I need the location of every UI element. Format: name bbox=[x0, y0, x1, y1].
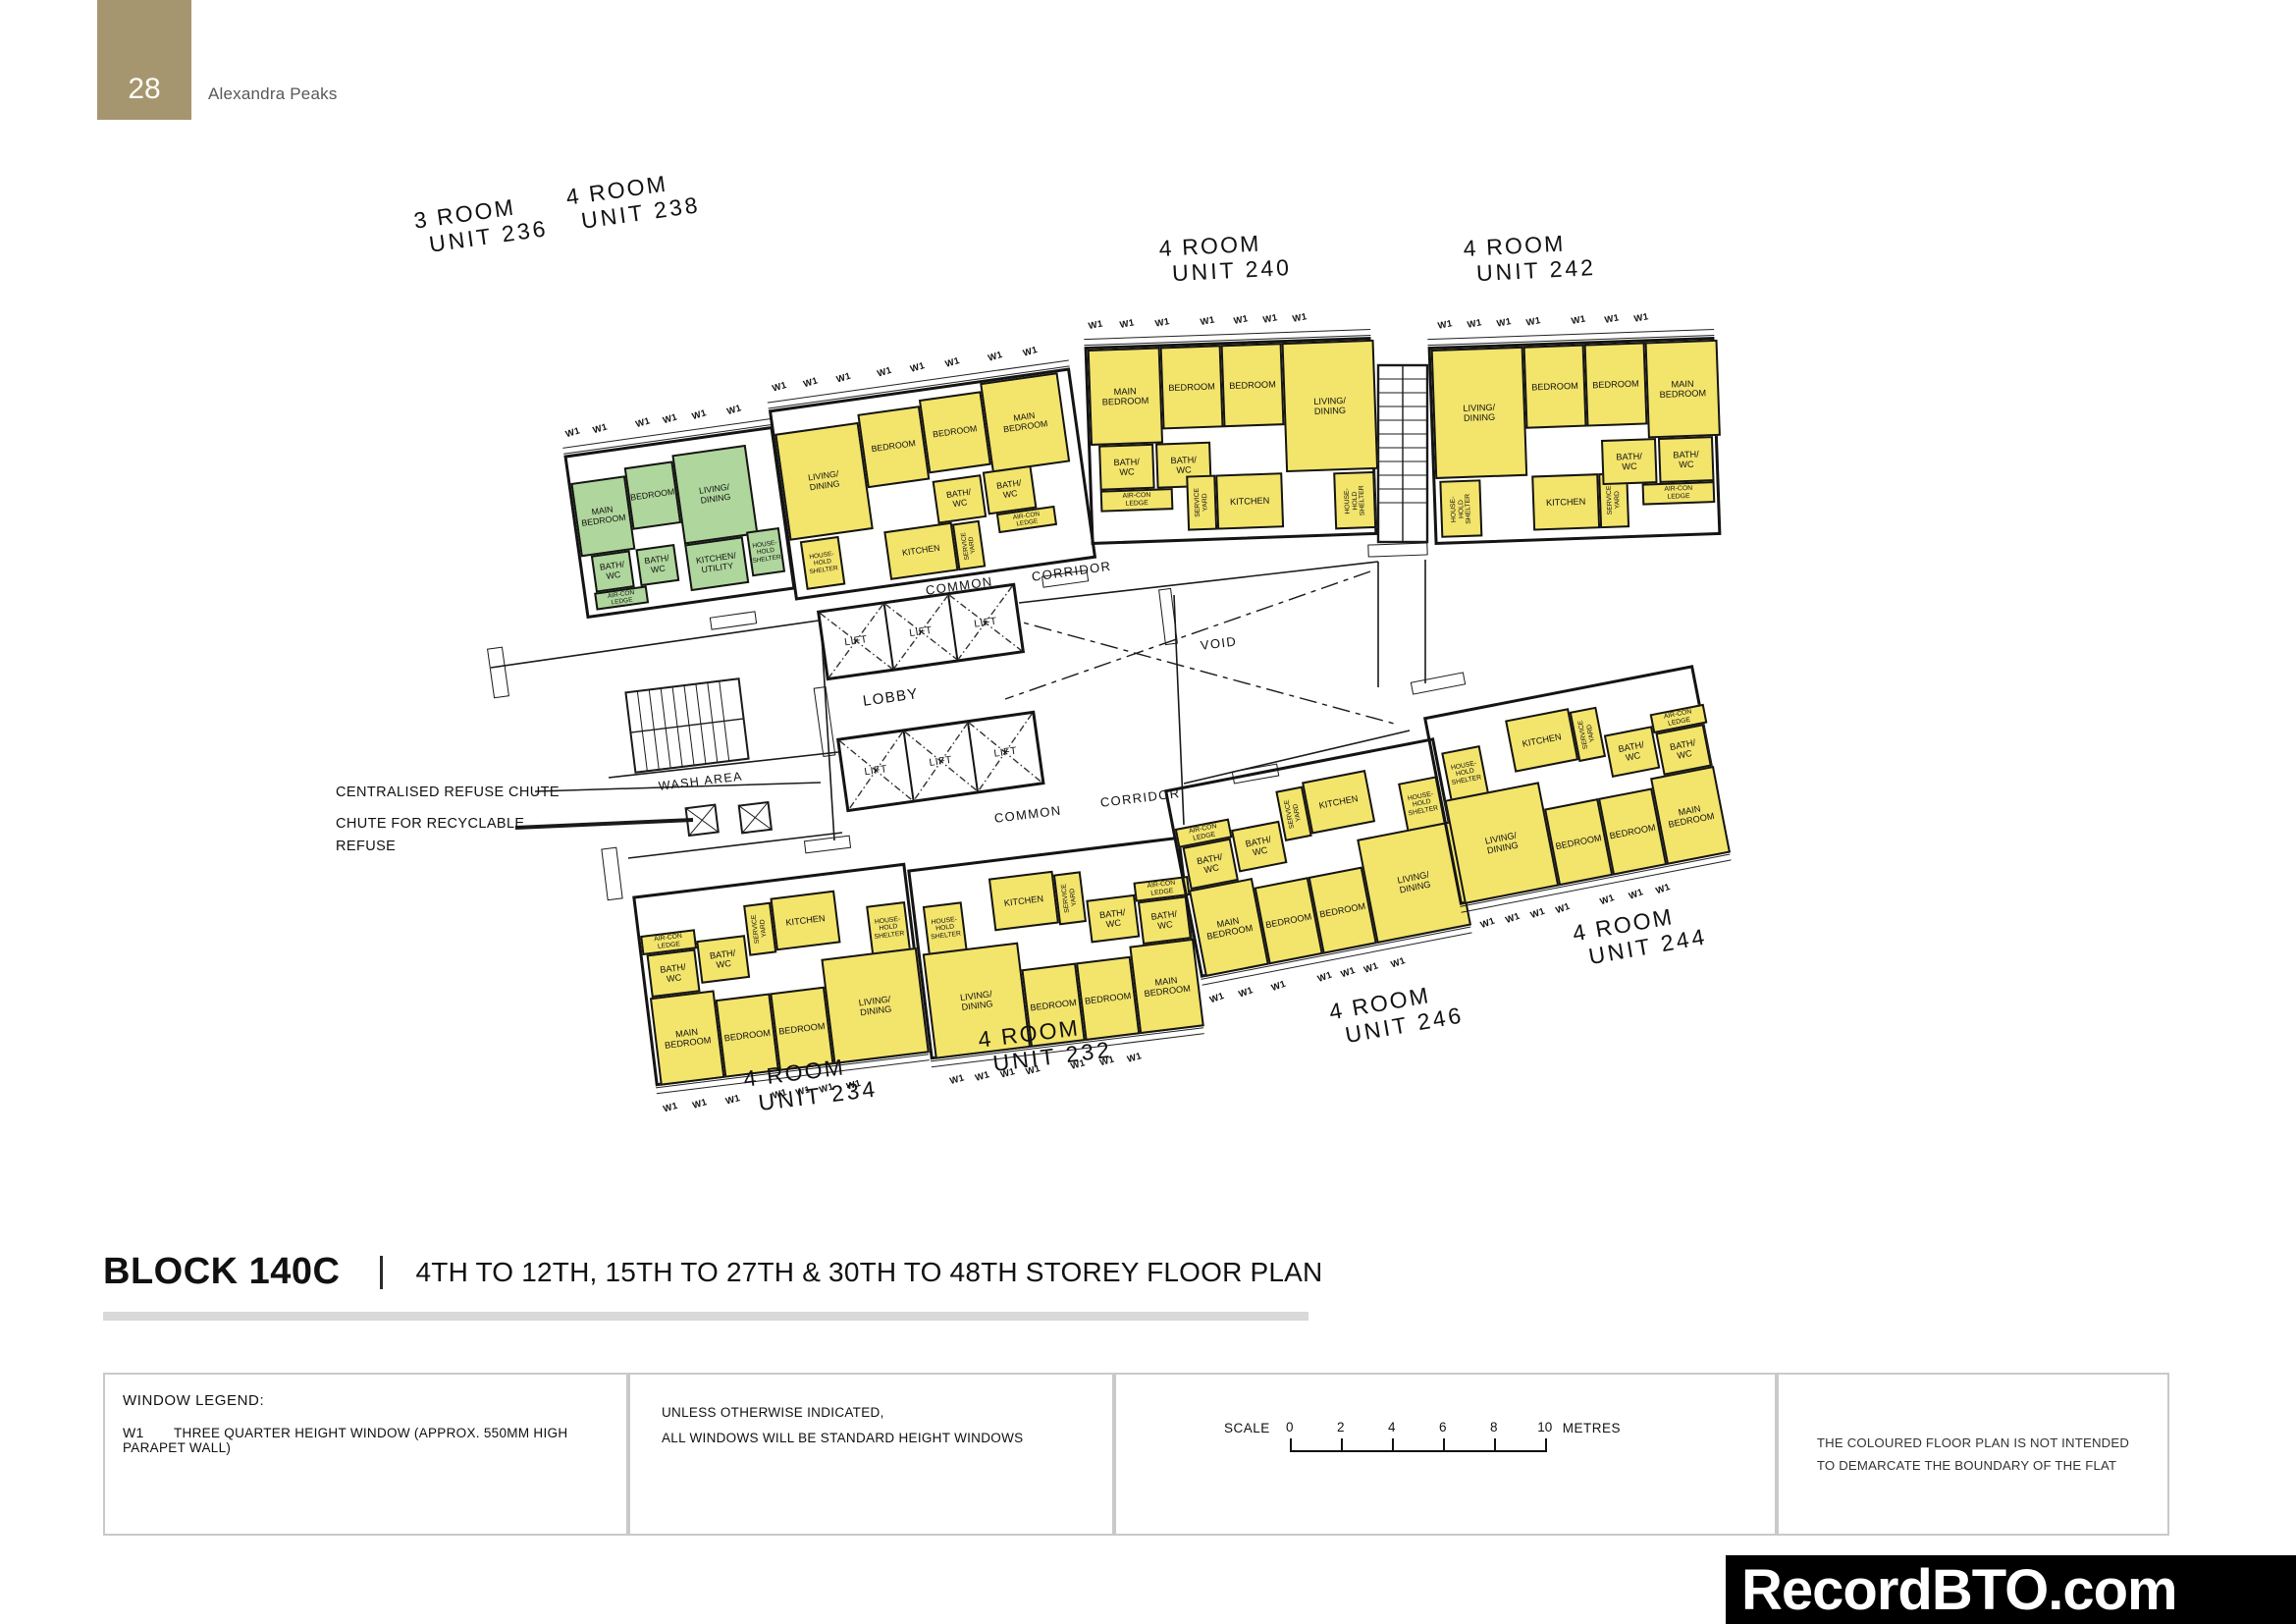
lift-cell: LIFT bbox=[820, 604, 893, 677]
room-bath-wc: BATH/ WC bbox=[1086, 894, 1140, 944]
scale-ruler-tick bbox=[1341, 1438, 1343, 1452]
room-label: HOUSE- HOLD SHELTER bbox=[1405, 790, 1439, 818]
unit-label-240: 4 ROOMUNIT 240 bbox=[1158, 229, 1293, 288]
room-label: BATH/ WC bbox=[1618, 739, 1647, 764]
room-main-bedroom: MAIN BEDROOM bbox=[1645, 340, 1721, 439]
room-label: MAIN BEDROOM bbox=[1143, 973, 1192, 999]
scale-label: SCALE bbox=[1224, 1420, 1270, 1435]
room-label: BEDROOM bbox=[1229, 379, 1276, 391]
room-label: BATH/ WC bbox=[1170, 455, 1197, 476]
room-label: LIVING/ DINING bbox=[1313, 396, 1346, 417]
room-label: BEDROOM bbox=[1555, 833, 1603, 851]
room-bedroom: BEDROOM bbox=[1221, 343, 1285, 427]
scale-ruler-tick bbox=[1443, 1438, 1445, 1452]
room-label: MAIN BEDROOM bbox=[1204, 913, 1255, 942]
floor-plan-page: 28 Alexandra Peaks bbox=[0, 0, 2296, 1624]
window-tag-w1: W1 bbox=[1262, 312, 1279, 326]
unit-label-line: UNIT 242 bbox=[1475, 254, 1596, 287]
window-tag-w1: W1 bbox=[634, 415, 651, 430]
window-tag-w1: W1 bbox=[1316, 970, 1334, 985]
room-house-hold-shelter: HOUSE- HOLD SHELTER bbox=[1333, 471, 1376, 529]
window-tag-w1: W1 bbox=[1628, 887, 1645, 901]
window-tag-w1: W1 bbox=[1340, 965, 1358, 980]
window-tag-w1: W1 bbox=[1633, 311, 1650, 325]
disclaimer-box: THE COLOURED FLOOR PLAN IS NOT INTENDED … bbox=[1777, 1373, 2169, 1536]
window-tag-w1: W1 bbox=[1479, 916, 1497, 931]
window-tag-w1: W1 bbox=[1270, 979, 1288, 994]
window-tag-w1: W1 bbox=[1233, 313, 1250, 327]
room-bath-wc: BATH/ WC bbox=[635, 544, 679, 586]
room-label: LIVING/ DINING bbox=[858, 994, 892, 1017]
window-tag-w1: W1 bbox=[1571, 313, 1587, 327]
unit-label-236: 3 ROOMUNIT 236 bbox=[412, 189, 550, 259]
scale-tick: 2 bbox=[1337, 1420, 1345, 1435]
room-bedroom: BEDROOM bbox=[857, 406, 930, 488]
room-bath-wc: BATH/ WC bbox=[1601, 438, 1658, 485]
room-living-dining: LIVING/ DINING bbox=[774, 422, 873, 541]
scale-ruler-tick bbox=[1290, 1438, 1292, 1452]
legend-strip: WINDOW LEGEND: W1THREE QUARTER HEIGHT WI… bbox=[103, 1373, 2169, 1536]
room-label: AIR-CON LEDGE bbox=[1147, 880, 1176, 898]
room-label: BEDROOM bbox=[630, 488, 675, 504]
room-service-yard: SERVICE YARD bbox=[952, 520, 986, 570]
unit-240: W1W1W1W1W1W1W1MAIN BEDROOMBEDROOMBEDROOM… bbox=[1085, 337, 1378, 545]
room-label: KITCHEN bbox=[1318, 793, 1360, 811]
window-tag-w1: W1 bbox=[1504, 911, 1522, 926]
room-bedroom: BEDROOM bbox=[624, 460, 681, 529]
window-legend-box: WINDOW LEGEND: W1THREE QUARTER HEIGHT WI… bbox=[103, 1373, 628, 1536]
scale-tick: 6 bbox=[1439, 1420, 1447, 1435]
room-living-dining: LIVING/ DINING bbox=[1431, 347, 1528, 479]
room-main-bedroom: MAIN BEDROOM bbox=[650, 990, 724, 1085]
room-label: BATH/ WC bbox=[1113, 457, 1140, 478]
room-bedroom: BEDROOM bbox=[1523, 345, 1587, 429]
room-label: BEDROOM bbox=[1531, 381, 1578, 393]
room-label: AIR-CON LEDGE bbox=[1012, 511, 1041, 528]
room-label: KITCHEN bbox=[902, 544, 941, 559]
lift-cell: LIFT bbox=[904, 723, 979, 800]
room-label: MAIN BEDROOM bbox=[1101, 386, 1148, 407]
room-label: LIVING/ DINING bbox=[808, 469, 841, 493]
room-bath-wc: BATH/ WC bbox=[696, 935, 750, 984]
room-bath-wc: BATH/ WC bbox=[1138, 895, 1192, 945]
room-label: BEDROOM bbox=[723, 1028, 771, 1044]
window-tag-w1: W1 bbox=[725, 403, 742, 417]
room-living-dining: LIVING/ DINING bbox=[1444, 782, 1559, 904]
room-kitchen: KITCHEN bbox=[770, 891, 840, 951]
scale-ruler-tick bbox=[1392, 1438, 1394, 1452]
unit-label-244: 4 ROOMUNIT 244 bbox=[1571, 898, 1709, 972]
room-label: SERVICE YARD bbox=[1061, 883, 1080, 913]
watermark-text: RecordBTO.com bbox=[1741, 1557, 2177, 1623]
window-tag-w1: W1 bbox=[909, 360, 926, 375]
scale-bar: SCALE 0 2 4 6 8 10 METRES bbox=[1224, 1420, 1621, 1463]
room-label: BATH/ WC bbox=[1098, 907, 1127, 931]
scale-tick: 8 bbox=[1490, 1420, 1498, 1435]
room-bedroom: BEDROOM bbox=[919, 391, 991, 473]
room-house-hold-shelter: HOUSE- HOLD SHELTER bbox=[746, 527, 785, 576]
window-tag-w1: W1 bbox=[1604, 312, 1621, 326]
room-label: BATH/ WC bbox=[644, 554, 671, 576]
scale-ruler-line bbox=[1290, 1450, 1547, 1452]
room-bath-wc: BATH/ WC bbox=[933, 474, 988, 524]
scale-ruler-tick bbox=[1545, 1438, 1547, 1452]
windows-note-line: ALL WINDOWS WILL BE STANDARD HEIGHT WIND… bbox=[662, 1431, 1023, 1445]
room-label: BATH/ WC bbox=[1673, 449, 1699, 470]
disclaimer-text: THE COLOURED FLOOR PLAN IS NOT INTENDED … bbox=[1817, 1432, 2129, 1477]
room-label: LIVING/ DINING bbox=[699, 483, 732, 507]
title-divider bbox=[380, 1256, 383, 1289]
disclaimer-line: TO DEMARCATE THE BOUNDARY OF THE FLAT bbox=[1817, 1458, 2116, 1473]
room-label: HOUSE- HOLD SHELTER bbox=[1449, 493, 1472, 524]
room-label: HOUSE- HOLD SHELTER bbox=[807, 550, 838, 575]
room-living-dining: LIVING/ DINING bbox=[821, 947, 929, 1064]
room-label: KITCHEN bbox=[785, 913, 826, 928]
window-legend-row: W1THREE QUARTER HEIGHT WINDOW (APPROX. 5… bbox=[123, 1425, 626, 1455]
room-label: BATH/ WC bbox=[709, 947, 737, 971]
room-bath-wc: BATH/ WC bbox=[1604, 726, 1660, 778]
window-tag-w1: W1 bbox=[1654, 882, 1672, 896]
window-tag-w1: W1 bbox=[1022, 345, 1039, 359]
window-legend-title: WINDOW LEGEND: bbox=[123, 1392, 626, 1409]
room-label: BEDROOM bbox=[1264, 911, 1312, 930]
lift-cell: LIFT bbox=[839, 731, 914, 809]
unit-246: W1W1W1W1W1W1W1AIR-CON LEDGEBATH/ WCBATH/… bbox=[1164, 737, 1470, 978]
room-label: LIVING/ DINING bbox=[959, 989, 993, 1012]
room-label: KITCHEN/ UTILITY bbox=[696, 552, 738, 576]
room-living-dining: LIVING/ DINING bbox=[1282, 340, 1379, 472]
room-label: LIVING/ DINING bbox=[1397, 869, 1432, 894]
room-kitchen: KITCHEN bbox=[1531, 473, 1600, 530]
scale-tick: 10 bbox=[1537, 1420, 1552, 1435]
window-tag-w1: W1 bbox=[1529, 906, 1547, 921]
window-description: THREE QUARTER HEIGHT WINDOW (APPROX. 550… bbox=[123, 1426, 567, 1455]
room-label: BATH/ WC bbox=[1245, 834, 1274, 858]
recycle-chute-callout-line: REFUSE bbox=[336, 839, 396, 854]
storey-subtitle: 4TH TO 12TH, 15TH TO 27TH & 30TH TO 48TH… bbox=[416, 1257, 1323, 1288]
room-label: SERVICE YARD bbox=[1194, 488, 1209, 517]
recycle-chute-callout: CHUTE FOR RECYCLABLE REFUSE bbox=[336, 813, 525, 858]
room-label: BATH/ WC bbox=[1669, 737, 1698, 762]
scale-tick: 0 bbox=[1286, 1420, 1294, 1435]
scale-tick: 4 bbox=[1388, 1420, 1396, 1435]
room-bedroom: BEDROOM bbox=[1584, 342, 1648, 426]
unit-label-242: 4 ROOMUNIT 242 bbox=[1463, 229, 1597, 288]
window-tag-w1: W1 bbox=[1554, 901, 1572, 916]
window-tag-w1: W1 bbox=[1467, 317, 1483, 331]
unit-242: W1W1W1W1W1W1W1LIVING/ DININGBEDROOMBEDRO… bbox=[1428, 337, 1722, 545]
window-tag-w1: W1 bbox=[662, 411, 678, 426]
window-tag-w1: W1 bbox=[564, 425, 581, 440]
window-tag-w1: W1 bbox=[1390, 955, 1408, 970]
room-label: SERVICE YARD bbox=[1606, 486, 1622, 515]
room-label: HOUSE- HOLD SHELTER bbox=[929, 915, 961, 941]
room-service-yard: SERVICE YARD bbox=[1053, 871, 1087, 925]
window-tag-w1: W1 bbox=[592, 421, 609, 436]
room-main-bedroom: MAIN BEDROOM bbox=[1129, 939, 1203, 1034]
window-tag-w1: W1 bbox=[1599, 893, 1617, 907]
scale-unit: METRES bbox=[1563, 1420, 1621, 1435]
room-main-bedroom: MAIN BEDROOM bbox=[570, 475, 635, 557]
room-label: SERVICE YARD bbox=[1577, 719, 1598, 750]
unit-label-238: 4 ROOMUNIT 238 bbox=[564, 166, 702, 236]
unit-234: W1W1W1W1W1W1W1AIR-CON LEDGEBATH/ WCBATH/… bbox=[632, 863, 929, 1087]
window-tag-w1: W1 bbox=[835, 371, 852, 386]
room-label: KITCHEN bbox=[1230, 496, 1270, 508]
room-main-bedroom: MAIN BEDROOM bbox=[980, 372, 1070, 472]
room-bath-wc: BATH/ WC bbox=[1231, 821, 1287, 873]
room-label: BEDROOM bbox=[1168, 381, 1215, 393]
windows-note-box: UNLESS OTHERWISE INDICATED, ALL WINDOWS … bbox=[628, 1373, 1114, 1536]
room-label: MAIN BEDROOM bbox=[1666, 801, 1716, 830]
room-label: SERVICE YARD bbox=[1284, 798, 1305, 830]
room-label: BATH/ WC bbox=[1150, 908, 1179, 932]
room-label: KITCHEN bbox=[1546, 496, 1586, 508]
window-tag-w1: W1 bbox=[1208, 991, 1226, 1005]
lift-cell: LIFT bbox=[884, 595, 958, 669]
window-tag-w1: W1 bbox=[1088, 318, 1104, 332]
room-label: MAIN BEDROOM bbox=[663, 1025, 712, 1051]
room-kitchen: KITCHEN bbox=[1505, 708, 1578, 773]
room-label: BATH/ WC bbox=[996, 479, 1024, 502]
window-tag-w1: W1 bbox=[1496, 316, 1513, 330]
room-label: BATH/ WC bbox=[660, 961, 688, 985]
room-label: MAIN BEDROOM bbox=[1001, 409, 1048, 435]
room-label: LIVING/ DINING bbox=[1463, 403, 1495, 424]
lift-cell: LIFT bbox=[969, 714, 1041, 790]
room-house-hold-shelter: HOUSE- HOLD SHELTER bbox=[866, 901, 911, 955]
window-tag-w1: W1 bbox=[802, 375, 819, 390]
window-tag-w1: W1 bbox=[691, 407, 708, 422]
room-main-bedroom: MAIN BEDROOM bbox=[1088, 347, 1163, 446]
title-underline-bar bbox=[103, 1312, 1308, 1321]
room-label: KITCHEN bbox=[1003, 893, 1043, 908]
room-label: BEDROOM bbox=[871, 439, 916, 455]
unit-238: W1W1W1W1W1W1W1W1LIVING/ DININGBEDROOMBED… bbox=[769, 367, 1096, 600]
room-label: LIVING/ DINING bbox=[1484, 830, 1520, 855]
window-tag-w1: W1 bbox=[1362, 960, 1380, 975]
lift-cell: LIFT bbox=[949, 586, 1021, 659]
window-tag-w1: W1 bbox=[1237, 985, 1255, 1000]
block-title: BLOCK 140C bbox=[103, 1251, 341, 1293]
window-tag-w1: W1 bbox=[948, 1072, 965, 1087]
watermark-banner: RecordBTO.com bbox=[1726, 1555, 2296, 1624]
refuse-chute-callout: CENTRALISED REFUSE CHUTE bbox=[336, 782, 560, 804]
room-label: BATH/ WC bbox=[946, 488, 974, 511]
unit-label-line: UNIT 240 bbox=[1171, 254, 1292, 287]
disclaimer-line: THE COLOURED FLOOR PLAN IS NOT INTENDED bbox=[1817, 1435, 2129, 1450]
room-label: AIR-CON LEDGE bbox=[608, 589, 636, 607]
room-kitchen-utility: KITCHEN/ UTILITY bbox=[684, 536, 749, 591]
scale-box: SCALE 0 2 4 6 8 10 METRES bbox=[1114, 1373, 1777, 1536]
window-tag-w1: W1 bbox=[724, 1093, 741, 1108]
room-label: HOUSE- HOLD SHELTER bbox=[872, 915, 904, 941]
room-house-hold-shelter: HOUSE- HOLD SHELTER bbox=[1439, 479, 1482, 537]
room-label: HOUSE- HOLD SHELTER bbox=[750, 539, 781, 565]
window-tag-w1: W1 bbox=[1119, 317, 1136, 331]
room-kitchen: KITCHEN bbox=[883, 522, 958, 580]
recycle-chute-callout-line: CHUTE FOR RECYCLABLE bbox=[336, 816, 525, 832]
window-tag-w1: W1 bbox=[1200, 314, 1216, 328]
room-label: AIR-CON LEDGE bbox=[1664, 485, 1692, 501]
window-tag-w1: W1 bbox=[771, 380, 787, 395]
window-tag-w1: W1 bbox=[691, 1097, 708, 1111]
room-bath-wc: BATH/ WC bbox=[591, 550, 635, 592]
window-tag-w1: W1 bbox=[876, 365, 892, 380]
room-living-dining: LIVING/ DINING bbox=[671, 445, 758, 545]
window-tag-w1: W1 bbox=[1525, 315, 1542, 329]
room-bath-wc: BATH/ WC bbox=[983, 465, 1038, 515]
window-tag-w1: W1 bbox=[662, 1101, 678, 1115]
window-tag-w1: W1 bbox=[1437, 318, 1454, 332]
room-label: BEDROOM bbox=[1318, 900, 1366, 919]
room-label: BATH/ WC bbox=[1196, 851, 1225, 876]
room-label: AIR-CON LEDGE bbox=[1122, 492, 1150, 508]
window-tag-w1: W1 bbox=[987, 350, 1003, 364]
window-tag-w1: W1 bbox=[1154, 316, 1171, 330]
room-label: BATH/ WC bbox=[599, 560, 626, 582]
unit-236: W1W1W1W1W1W1MAIN BEDROOMBEDROOMLIVING/ D… bbox=[563, 426, 795, 619]
unit-244: W1W1W1W1W1W1W1HOUSE- HOLD SHELTERKITCHEN… bbox=[1423, 665, 1730, 905]
room-service-yard: SERVICE YARD bbox=[1186, 475, 1217, 531]
room-house-hold-shelter: HOUSE- HOLD SHELTER bbox=[923, 901, 968, 955]
window-tag-w1: W1 bbox=[1126, 1051, 1143, 1065]
room-kitchen: KITCHEN bbox=[1302, 770, 1375, 835]
room-kitchen: KITCHEN bbox=[988, 871, 1059, 932]
room-label: MAIN BEDROOM bbox=[1659, 378, 1706, 400]
room-bath-wc: BATH/ WC bbox=[647, 948, 701, 998]
room-label: BEDROOM bbox=[1592, 379, 1639, 391]
room-label: AIR-CON LEDGE bbox=[654, 933, 683, 951]
window-tag-w1: W1 bbox=[1292, 311, 1308, 325]
room-label: BEDROOM bbox=[1084, 991, 1131, 1006]
unit-label-246: 4 ROOMUNIT 246 bbox=[1327, 977, 1466, 1051]
room-bedroom: BEDROOM bbox=[1160, 345, 1224, 429]
room-label: SERVICE YARD bbox=[960, 530, 978, 560]
scale-ruler: 0 2 4 6 8 10 bbox=[1290, 1420, 1547, 1463]
room-label: BEDROOM bbox=[778, 1021, 826, 1037]
windows-note: UNLESS OTHERWISE INDICATED, ALL WINDOWS … bbox=[662, 1400, 1112, 1450]
room-house-hold-shelter: HOUSE- HOLD SHELTER bbox=[800, 536, 846, 590]
room-label: BEDROOM bbox=[1609, 822, 1657, 840]
room-label: BEDROOM bbox=[933, 424, 978, 440]
room-bath-wc: BATH/ WC bbox=[1098, 444, 1155, 491]
room-bath-wc: BATH/ WC bbox=[1658, 436, 1715, 483]
windows-note-line: UNLESS OTHERWISE INDICATED, bbox=[662, 1405, 884, 1420]
room-label: HOUSE- HOLD SHELTER bbox=[1448, 759, 1482, 786]
title-row: BLOCK 140C 4TH TO 12TH, 15TH TO 27TH & 3… bbox=[103, 1251, 1322, 1293]
window-tag-w1: W1 bbox=[944, 355, 961, 370]
room-label: MAIN BEDROOM bbox=[579, 504, 626, 529]
room-label: BEDROOM bbox=[1030, 998, 1077, 1013]
scale-ruler-tick bbox=[1494, 1438, 1496, 1452]
room-air-con-ledge: AIR-CON LEDGE bbox=[1642, 481, 1716, 506]
room-label: KITCHEN bbox=[1522, 731, 1563, 749]
room-air-con-ledge: AIR-CON LEDGE bbox=[1100, 488, 1174, 513]
room-label: HOUSE- HOLD SHELTER bbox=[1343, 485, 1366, 516]
room-kitchen: KITCHEN bbox=[1215, 472, 1284, 529]
room-label: SERVICE YARD bbox=[751, 914, 770, 945]
window-code: W1 bbox=[123, 1425, 174, 1440]
room-label: BATH/ WC bbox=[1616, 451, 1642, 472]
room-label: AIR-CON LEDGE bbox=[1663, 709, 1693, 729]
